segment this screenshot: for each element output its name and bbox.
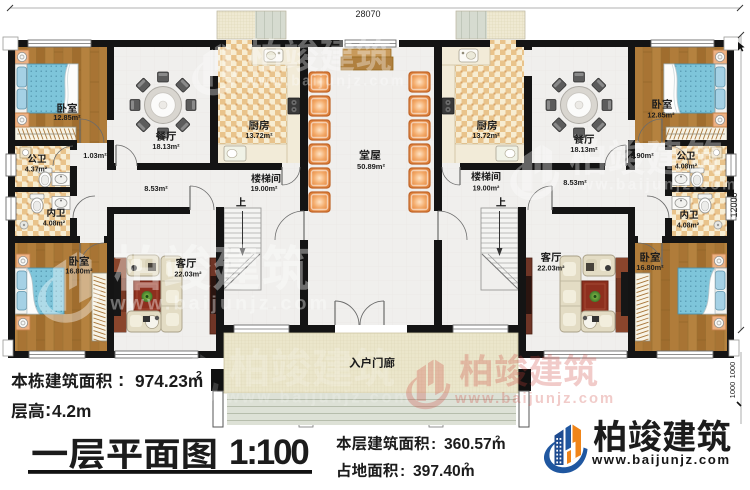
svg-text::: : (400, 463, 405, 480)
svg-text:1.03m²: 1.03m² (83, 151, 107, 160)
svg-text:28070: 28070 (355, 9, 380, 19)
svg-text:16.80m²: 16.80m² (636, 263, 664, 272)
svg-text:1000: 1000 (728, 362, 737, 379)
svg-text:19.00m²: 19.00m² (251, 184, 278, 193)
svg-text:www.baijunjz.com: www.baijunjz.com (591, 452, 731, 467)
svg-text:18.13m²: 18.13m² (570, 145, 598, 154)
svg-text:0.90m²: 0.90m² (630, 151, 654, 160)
svg-text:12000: 12000 (729, 192, 739, 217)
svg-text:1000: 1000 (728, 382, 737, 399)
svg-text:4.08m²: 4.08m² (677, 223, 700, 230)
svg-text:2: 2 (196, 369, 202, 381)
svg-text:13.72m²: 13.72m² (245, 131, 273, 140)
svg-text::: : (118, 370, 124, 391)
svg-text:2: 2 (464, 461, 469, 472)
svg-text:4.37m²: 4.37m² (25, 167, 48, 174)
svg-text:12.85m²: 12.85m² (53, 113, 81, 122)
svg-text:13.72m²: 13.72m² (472, 131, 500, 140)
svg-text:12.85m²: 12.85m² (647, 111, 675, 120)
svg-text:16.80m²: 16.80m² (65, 267, 93, 276)
svg-text:974.23m: 974.23m (135, 371, 203, 391)
svg-text:18.13m²: 18.13m² (152, 142, 180, 151)
svg-text:4.08m²: 4.08m² (43, 221, 66, 228)
svg-text::: : (431, 436, 436, 453)
svg-text:2: 2 (495, 434, 500, 445)
svg-text:1:100: 1:100 (229, 433, 309, 472)
svg-text:4.08m²: 4.08m² (675, 164, 698, 171)
svg-text:22.03m²: 22.03m² (174, 270, 202, 279)
svg-text:50.89m²: 50.89m² (357, 162, 385, 171)
svg-text:8.53m²: 8.53m² (563, 178, 587, 187)
svg-text:22.03m²: 22.03m² (537, 264, 565, 273)
svg-text:8.53m²: 8.53m² (144, 184, 168, 193)
svg-text:4.2m: 4.2m (52, 401, 91, 421)
svg-text::: : (45, 400, 51, 421)
svg-text:19.00m²: 19.00m² (473, 184, 500, 193)
